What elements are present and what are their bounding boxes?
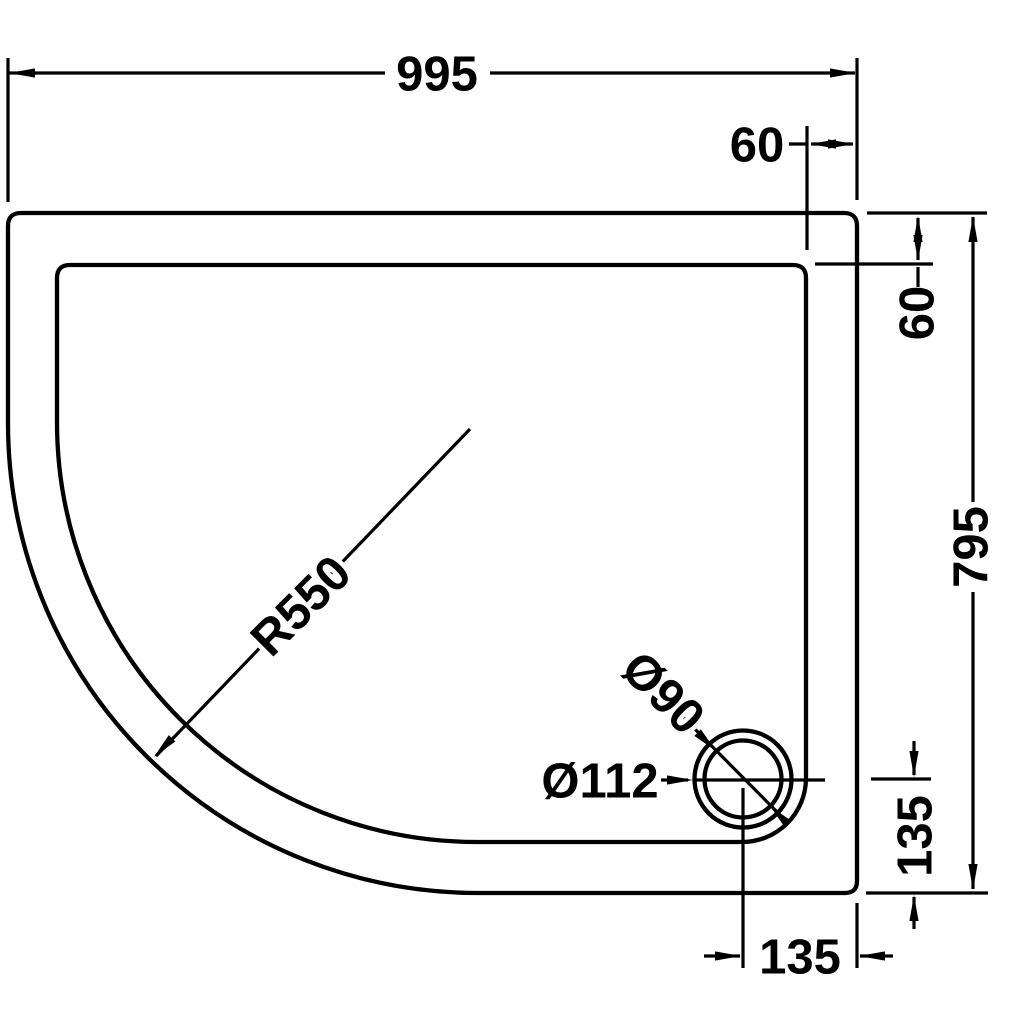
dim-waste-side-offset-label: 135: [759, 931, 841, 985]
arrowhead-down-icon: [913, 235, 922, 261]
arrowhead-up-left-icon: [767, 803, 792, 828]
technical-drawing-canvas: 995 60 60 795 135: [0, 0, 1022, 1022]
dim-width-label: 995: [396, 48, 478, 102]
arrowhead-right-icon: [830, 68, 856, 77]
dim-top-offset: 60: [730, 119, 854, 250]
dim-waste-outer-label: Ø112: [541, 755, 658, 809]
arrowhead-right-icon: [667, 775, 693, 784]
dim-top-offset-label: 60: [730, 119, 785, 173]
dim-waste-bottom-offset-label: 135: [889, 795, 943, 877]
dim-waste-inner-label: Ø90: [611, 641, 715, 745]
arrowhead-left-icon: [9, 68, 35, 77]
arrowhead-down-icon: [909, 751, 918, 777]
arrowhead-down-icon: [968, 864, 977, 890]
shower-tray-drawing: 995 60 60 795 135: [0, 0, 1022, 1022]
tray-outer-outline: [8, 213, 857, 893]
arrowhead-down-left-icon: [151, 735, 176, 760]
dim-corner-radius: R550: [151, 429, 470, 760]
arrowhead-right-icon: [828, 139, 854, 148]
dim-side-offset-label: 60: [891, 286, 945, 341]
shower-tray-outline: [8, 213, 857, 893]
tray-inner-outline: [57, 265, 806, 842]
arrowhead-up-icon: [968, 216, 977, 242]
dim-side-offset: 60: [815, 213, 987, 340]
arrowhead-down-right-icon: [694, 729, 719, 754]
dim-waste-bottom-offset: 135: [871, 741, 943, 929]
arrowhead-right-icon: [715, 951, 741, 960]
dim-height-label: 795: [945, 506, 999, 588]
